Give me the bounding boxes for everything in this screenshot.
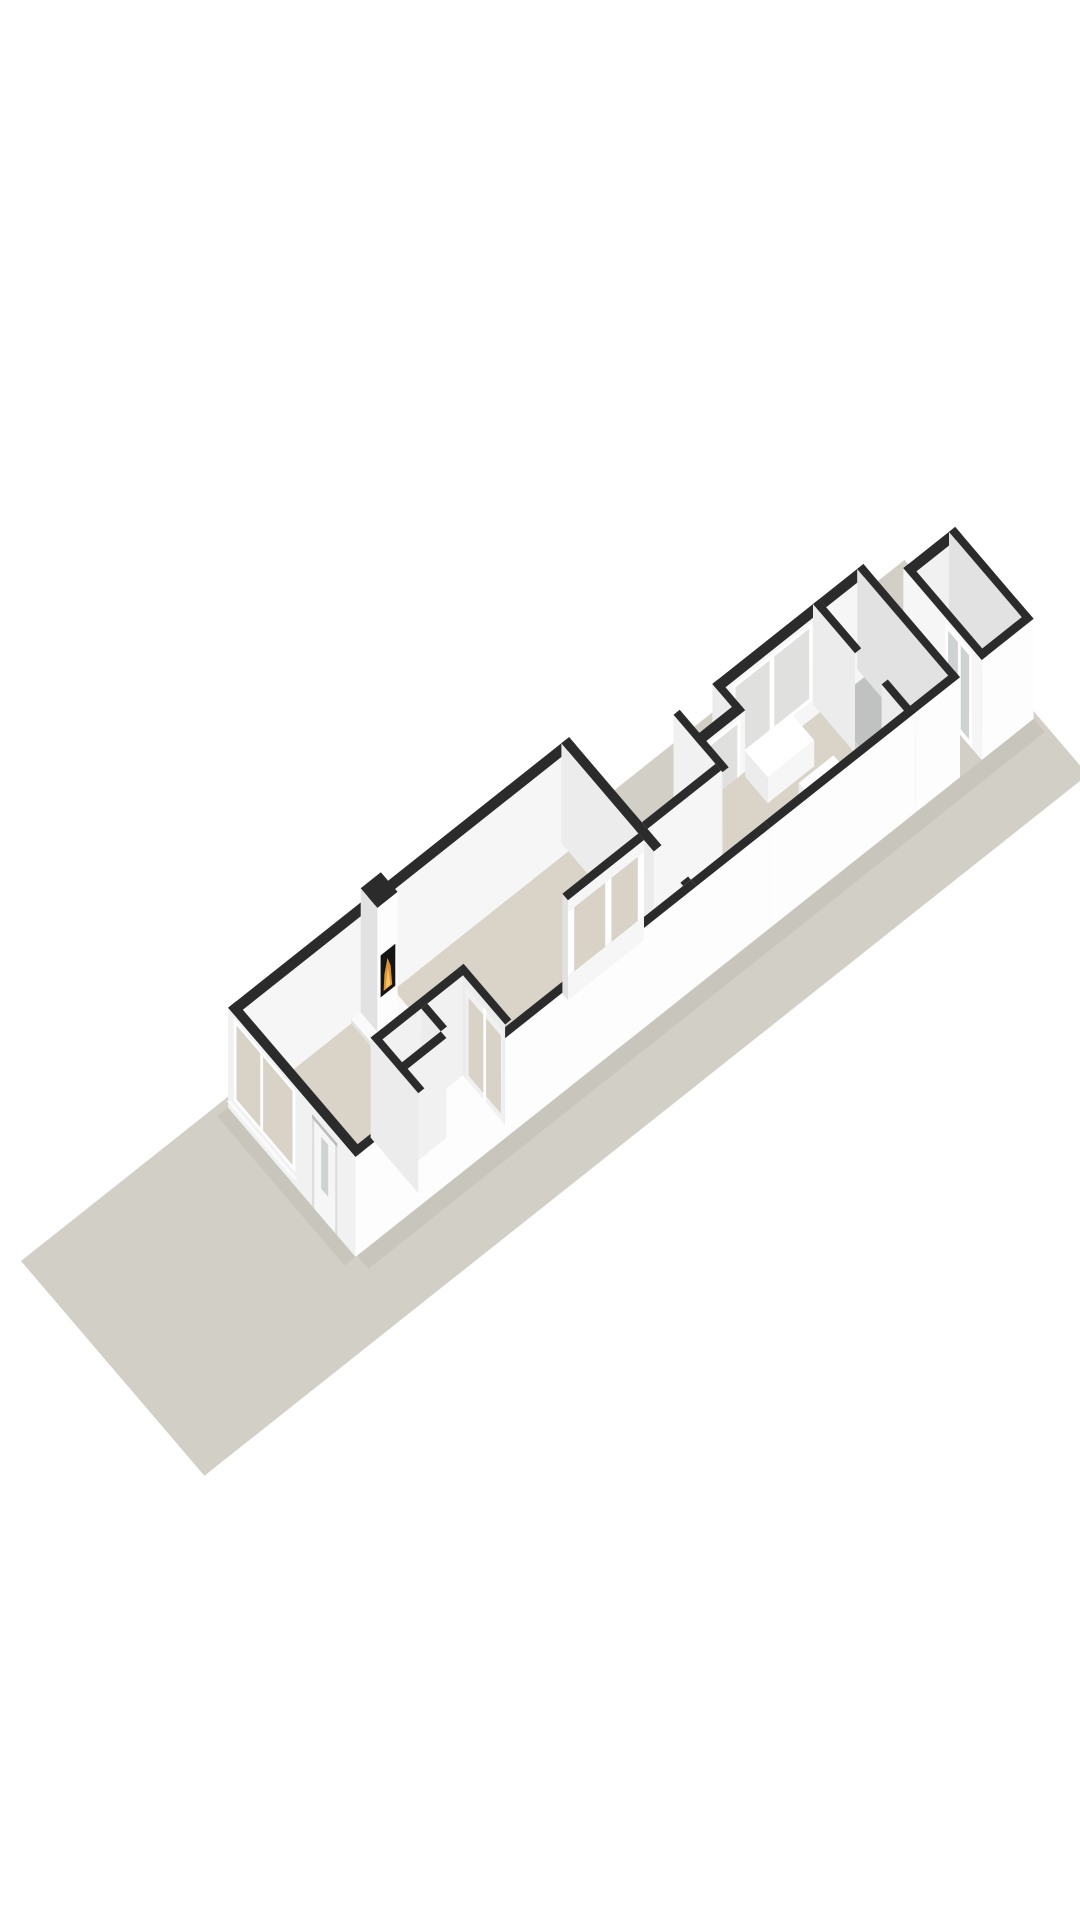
fireplace-column-front [361,888,378,1032]
glazed-partition-frame-c [638,852,644,921]
glazed-partition-frame-b [605,878,611,947]
front-door-glass-slit [321,1137,328,1197]
front-window-mullion [260,1053,263,1130]
floorplan-render-canvas [0,0,1080,1920]
annex-band-window-mullion [770,657,775,731]
double-door-stile [483,1007,486,1102]
glazed-partition-frame-a [568,907,574,976]
floorplan-3d-scene [0,0,1080,1920]
glazed-partition-cap [562,894,568,1001]
